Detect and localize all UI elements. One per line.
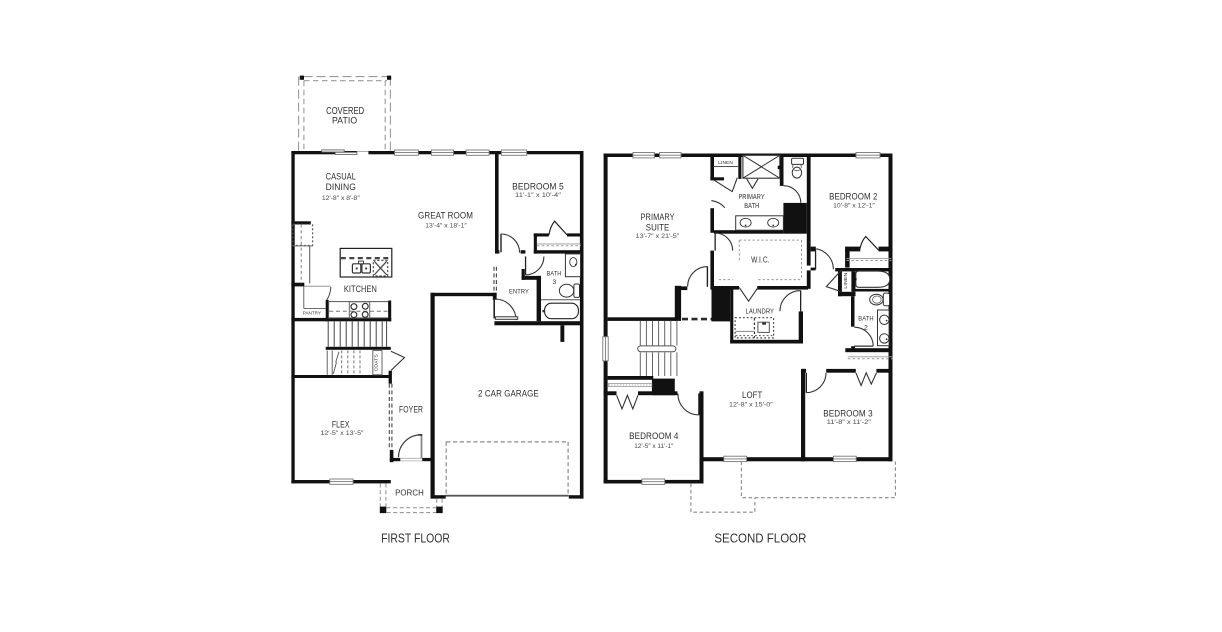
- svg-text:13′-7″ x 21′-5″: 13′-7″ x 21′-5″: [636, 233, 680, 240]
- svg-text:BATH: BATH: [858, 316, 873, 323]
- svg-text:GREAT ROOM: GREAT ROOM: [418, 210, 473, 221]
- svg-text:CASUAL: CASUAL: [326, 171, 356, 181]
- svg-text:12′-8″ x 15′-0″: 12′-8″ x 15′-0″: [729, 402, 773, 409]
- svg-text:LINEN: LINEN: [843, 273, 848, 289]
- svg-text:PORCH: PORCH: [395, 487, 424, 497]
- svg-text:FOYER: FOYER: [399, 404, 423, 414]
- svg-text:11′-8″ x 11′-2″: 11′-8″ x 11′-2″: [827, 419, 872, 426]
- svg-text:12′-8″ x 8′-8″: 12′-8″ x 8′-8″: [322, 195, 361, 202]
- svg-text:PRIMARY: PRIMARY: [738, 192, 764, 201]
- svg-text:FIRST FLOOR: FIRST FLOOR: [381, 531, 450, 545]
- svg-text:LINEN: LINEN: [718, 160, 733, 165]
- svg-text:LOFT: LOFT: [742, 389, 762, 400]
- svg-text:SUITE: SUITE: [646, 221, 670, 232]
- svg-text:12′-5″ x 11′-1″: 12′-5″ x 11′-1″: [634, 443, 674, 450]
- svg-text:10′-8″ x 12′-1″: 10′-8″ x 12′-1″: [833, 203, 875, 210]
- svg-text:KITCHEN: KITCHEN: [344, 284, 377, 294]
- svg-text:LAUNDRY: LAUNDRY: [746, 308, 775, 315]
- svg-text:W.I.C.: W.I.C.: [751, 256, 770, 265]
- svg-text:COATS: COATS: [374, 354, 379, 371]
- svg-text:3: 3: [552, 279, 556, 286]
- svg-text:SECOND FLOOR: SECOND FLOOR: [714, 531, 806, 546]
- svg-text:2 CAR GARAGE: 2 CAR GARAGE: [478, 389, 539, 399]
- svg-text:DINING: DINING: [326, 182, 356, 192]
- svg-text:13′-4″ x 18′-1″: 13′-4″ x 18′-1″: [425, 223, 467, 230]
- svg-text:ENTRY: ENTRY: [509, 288, 529, 295]
- svg-text:BEDROOM 4: BEDROOM 4: [629, 431, 678, 441]
- svg-text:PATIO: PATIO: [332, 114, 357, 125]
- svg-text:12′-5″ x 13′-5″: 12′-5″ x 13′-5″: [321, 430, 365, 437]
- svg-text:PANTRY: PANTRY: [303, 311, 322, 316]
- svg-text:BEDROOM 5: BEDROOM 5: [512, 182, 564, 192]
- svg-text:BATH: BATH: [744, 201, 759, 210]
- svg-text:2: 2: [864, 325, 868, 332]
- svg-text:BEDROOM 2: BEDROOM 2: [829, 192, 877, 202]
- svg-text:BEDROOM 3: BEDROOM 3: [823, 408, 872, 418]
- svg-text:BATH: BATH: [547, 271, 562, 278]
- svg-text:11′-1″ x 10′-4″: 11′-1″ x 10′-4″: [515, 192, 562, 199]
- svg-text:FLEX: FLEX: [332, 420, 350, 430]
